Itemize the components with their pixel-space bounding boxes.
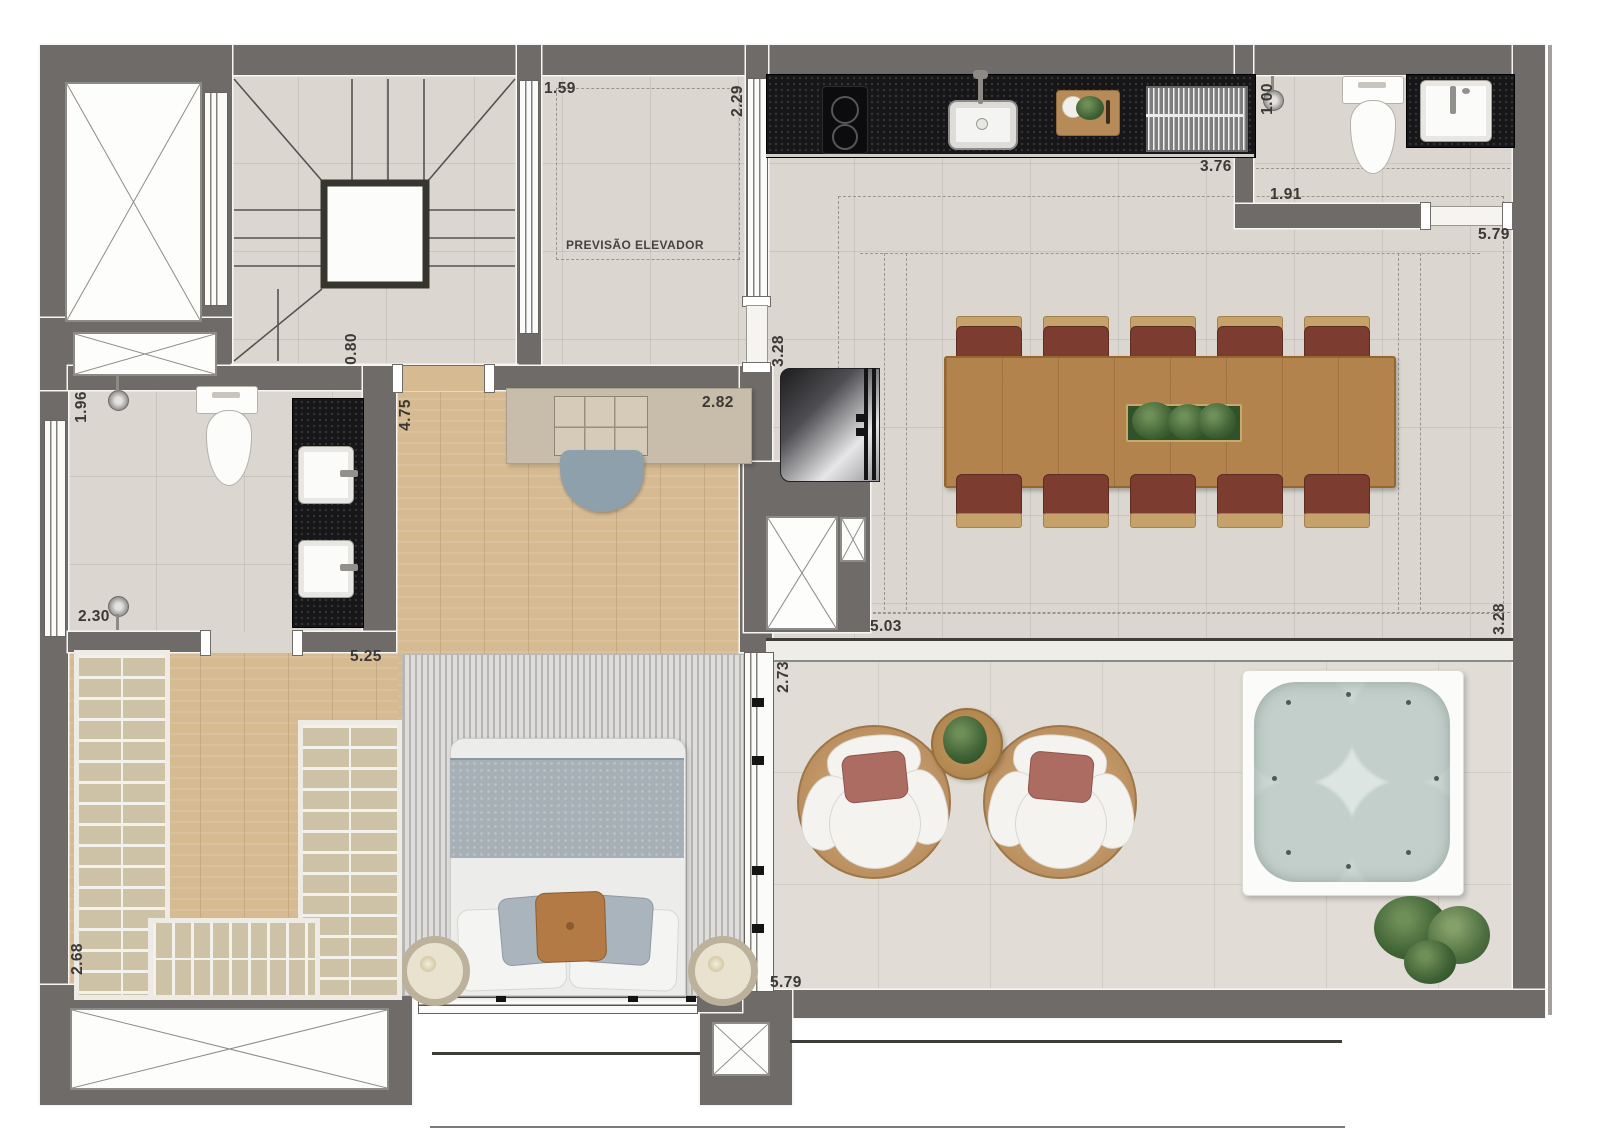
dining-chair [1217, 474, 1283, 518]
dimension-label: 2.68 [69, 937, 87, 981]
elevator-door-screen [204, 92, 228, 306]
sink-drain [976, 118, 988, 130]
kitchen-faucet-head [973, 70, 988, 79]
pillow-button [566, 922, 574, 930]
shower-stem [116, 614, 119, 630]
dimension-label: 5.79 [1478, 226, 1510, 244]
window-hardware [752, 866, 764, 875]
appliance-hinge-bar [872, 368, 876, 480]
dimension-label: 3.76 [1200, 158, 1232, 176]
door-jamb [392, 364, 403, 393]
dining-chair-back [1304, 513, 1370, 528]
dimension-label: 1.91 [1270, 186, 1302, 204]
dining-chair [1130, 474, 1196, 518]
cooktop-burner [832, 124, 858, 150]
ceiling-soffit-line [1398, 253, 1399, 610]
ceiling-soffit-line [768, 612, 1510, 613]
cooktop-burner [831, 96, 859, 124]
wall [1235, 204, 1425, 228]
ceiling-soffit-line [884, 253, 885, 610]
dimension-label: 5.03 [870, 618, 902, 636]
toilet-flush [212, 392, 240, 398]
facade-line [1548, 45, 1552, 1015]
dimension-label: 2.82 [702, 394, 734, 412]
toilet-flush [1358, 82, 1386, 88]
service-shaft-x-icon [840, 517, 866, 562]
stair-glass-screen [519, 80, 539, 334]
dish-rack [1146, 86, 1248, 152]
window-hardware [752, 698, 764, 707]
floor-plan: PREVISÃO ELEVADOR 1.59 2.29 1.00 3.76 1.… [0, 0, 1600, 1143]
dimension-label: 3.28 [770, 329, 788, 373]
door-opening [1428, 206, 1506, 226]
herb-plant [1076, 96, 1104, 120]
door-jamb [742, 362, 771, 373]
glass-partition [747, 78, 768, 300]
sink-faucet [340, 470, 358, 477]
dining-chair-back [956, 513, 1022, 528]
dimension-label: 0.80 [343, 327, 361, 371]
lounge-pillow [1027, 750, 1095, 803]
service-shaft-x-icon [766, 516, 838, 630]
elevator-provision-outline [556, 88, 740, 260]
counter-edge [766, 154, 1254, 157]
door-jamb [200, 630, 211, 656]
dimension-label: 5.25 [350, 648, 382, 666]
terrace-plant [1404, 940, 1456, 984]
side-table-plant [943, 716, 987, 764]
appliance-handle [856, 428, 866, 436]
dimension-label: 2.30 [78, 608, 110, 626]
appliance-hinge-bar [864, 368, 868, 480]
dimension-label: 2.29 [729, 79, 747, 123]
facade-line [432, 1052, 700, 1055]
wall [706, 990, 1545, 1018]
door-opening [209, 632, 292, 653]
dining-chair-back [1217, 513, 1283, 528]
dimension-label: 3.28 [1491, 597, 1509, 641]
shaft-x-icon [712, 1022, 770, 1076]
jacuzzi-water [1254, 682, 1450, 882]
door-opening [401, 366, 484, 391]
door-opening [746, 305, 768, 364]
dining-chair-back [1130, 513, 1196, 528]
dimension-label: 1.59 [544, 80, 576, 98]
centerpiece-plant [1198, 403, 1236, 439]
lounge-pillow [841, 750, 910, 804]
wall [363, 366, 396, 652]
ceiling-soffit-line [906, 253, 907, 610]
dining-chair [1043, 474, 1109, 518]
appliance-handle [856, 414, 866, 422]
dimension-label: 1.00 [1259, 77, 1277, 121]
duct-shaft-x-icon [73, 332, 217, 376]
dining-chair [956, 474, 1022, 518]
lounge-chair [983, 725, 1137, 879]
bathroom-facade-window [44, 420, 66, 637]
shaft-x-icon [70, 1008, 389, 1090]
elevator-shaft-x-icon [65, 82, 202, 322]
wardrobe [148, 918, 320, 1000]
sink-faucet [340, 564, 358, 571]
dimension-label: 4.75 [397, 393, 415, 437]
bathroom-sink [1420, 80, 1492, 142]
board-handle [1106, 100, 1110, 124]
sink-faucet [1450, 86, 1456, 114]
wall [68, 632, 205, 652]
lounge-chair [797, 725, 951, 879]
nightstand-lamp [420, 956, 436, 972]
ceiling-soffit-line [860, 253, 1480, 254]
jacuzzi-jets [1286, 700, 1291, 705]
facade-line [430, 1126, 1345, 1128]
dimension-label: 2.73 [775, 655, 793, 699]
nightstand [400, 936, 470, 1006]
stair-landing [324, 183, 426, 285]
wall [40, 45, 1545, 75]
nightstand [688, 936, 758, 1006]
dimension-label: 5.79 [770, 974, 802, 992]
kitchen-faucet [978, 76, 983, 104]
facade-line [790, 1040, 1342, 1043]
shower-head-icon [108, 390, 129, 411]
nightstand-lamp [708, 956, 724, 972]
window-hardware [752, 924, 764, 933]
dining-chair-back [1043, 513, 1109, 528]
bed-blanket [450, 758, 684, 858]
ceiling-soffit-line [1420, 253, 1421, 610]
window-hardware [752, 756, 764, 765]
shower-stem [116, 376, 119, 392]
faucet-knob [1462, 88, 1470, 94]
wall [494, 366, 746, 390]
dish-rack-bar [1146, 114, 1244, 117]
door-jamb [1420, 202, 1431, 230]
dining-chair [1304, 474, 1370, 518]
vanity-jewelry-tray [554, 396, 648, 456]
door-jamb [484, 364, 495, 393]
elevator-note: PREVISÃO ELEVADOR [566, 238, 704, 252]
glass-wall-living-terrace [766, 641, 1513, 662]
wall [1513, 45, 1545, 1018]
staircase [232, 77, 517, 363]
dimension-label: 1.96 [73, 385, 91, 429]
door-jamb [292, 630, 303, 656]
